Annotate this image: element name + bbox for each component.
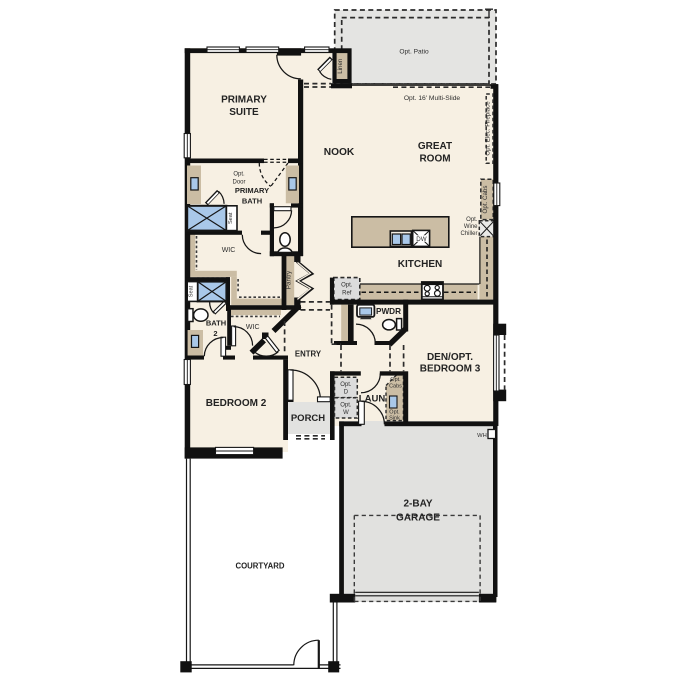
svg-text:DEN/OPT.: DEN/OPT. [427, 352, 473, 363]
svg-text:PRIMARY: PRIMARY [235, 186, 269, 195]
svg-text:GARAGE: GARAGE [396, 512, 440, 523]
svg-text:Opt.: Opt. [390, 377, 401, 383]
svg-text:Pantry: Pantry [285, 270, 292, 289]
svg-text:NOOK: NOOK [324, 147, 355, 158]
svg-text:GREAT: GREAT [418, 141, 452, 152]
svg-text:Opt. Cabs: Opt. Cabs [482, 186, 489, 214]
svg-text:Door: Door [232, 180, 245, 186]
svg-text:KITCHEN: KITCHEN [398, 259, 442, 270]
svg-text:Opt. 16' Multi-Slide: Opt. 16' Multi-Slide [404, 95, 461, 102]
svg-text:Wine: Wine [464, 224, 478, 230]
svg-text:WIC: WIC [246, 324, 260, 331]
svg-text:Seat: Seat [189, 285, 195, 297]
svg-text:Seat: Seat [228, 212, 234, 224]
svg-text:PWDR: PWDR [376, 307, 401, 316]
svg-text:Sink: Sink [389, 416, 400, 422]
svg-text:Opt.: Opt. [340, 403, 352, 409]
svg-text:Opt.: Opt. [233, 172, 245, 178]
svg-text:PORCH: PORCH [291, 413, 325, 424]
svg-text:Linen: Linen [337, 58, 344, 74]
svg-text:D: D [344, 390, 349, 396]
svg-text:ENTRY: ENTRY [295, 350, 322, 359]
svg-text:BATH: BATH [206, 319, 226, 328]
svg-text:BEDROOM 2: BEDROOM 2 [206, 398, 267, 409]
svg-text:2: 2 [213, 329, 217, 338]
svg-text:LAUN: LAUN [359, 394, 386, 405]
svg-text:Opt.: Opt. [466, 217, 478, 223]
svg-text:Opt.: Opt. [341, 283, 353, 289]
svg-text:Opt.: Opt. [389, 409, 400, 415]
svg-text:PRIMARY: PRIMARY [221, 95, 267, 106]
svg-text:WH: WH [477, 433, 487, 439]
svg-text:ROOM: ROOM [419, 154, 450, 165]
svg-text:Ref: Ref [342, 291, 352, 297]
svg-text:Opt. Elec. Fireplace: Opt. Elec. Fireplace [485, 101, 492, 156]
svg-text:Cabs: Cabs [389, 383, 402, 389]
svg-text:Opt. Patio: Opt. Patio [399, 49, 429, 56]
svg-text:2-BAY: 2-BAY [403, 499, 432, 510]
svg-text:Chiller: Chiller [460, 231, 477, 237]
svg-text:BEDROOM 3: BEDROOM 3 [420, 364, 481, 375]
svg-text:BATH: BATH [242, 197, 262, 206]
svg-text:WIC: WIC [222, 247, 236, 254]
svg-text:COURTYARD: COURTYARD [235, 561, 284, 570]
svg-text:Opt.: Opt. [340, 382, 352, 388]
svg-text:W: W [343, 410, 349, 416]
svg-text:DW: DW [416, 236, 426, 243]
svg-text:SUITE: SUITE [229, 107, 259, 118]
